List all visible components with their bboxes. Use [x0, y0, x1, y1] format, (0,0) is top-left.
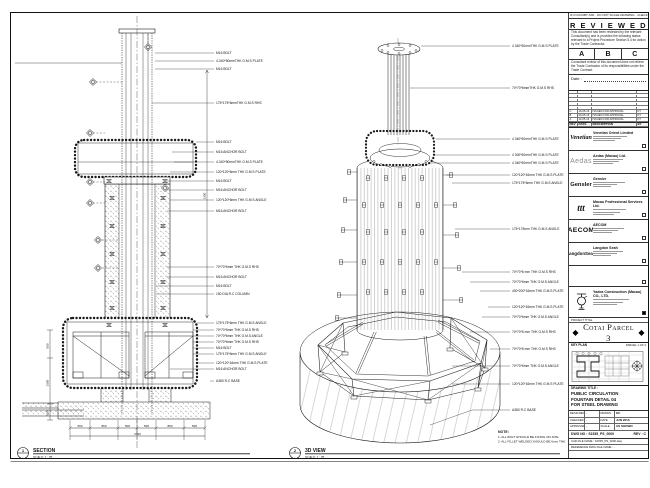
- callout-label: M16 BOLT: [216, 140, 232, 144]
- status-checkbox: [642, 144, 646, 148]
- callout-label: 120*120*16mm THK G.M.S PLATE: [512, 305, 564, 309]
- venetian-logo: Venetian: [569, 128, 593, 150]
- dim-label: 3300: [203, 192, 207, 199]
- stamp-paragraph: Consultant review of this document does …: [569, 60, 648, 74]
- gensler-logo: Gensler: [569, 174, 593, 196]
- reference-dwg-row: REFERENCE DWG FILE NAME : -: [569, 445, 648, 451]
- callout-label: 4 340*50mmTHK G.M.S PLATE: [512, 44, 559, 48]
- status-checkbox: [642, 167, 646, 171]
- title-block: IF IN DOUBT ASK · DO NOT SCALE DRAWING ·…: [569, 13, 648, 458]
- status-checkbox-filled: [642, 311, 646, 315]
- dwg-no: S1535_PS_0000: [588, 432, 614, 436]
- note-title: NOTE:: [498, 430, 509, 434]
- iso-title: 3D VIEW: [305, 448, 326, 454]
- rev-value: C: [644, 432, 646, 436]
- callout-label: M16 BOLT: [216, 284, 232, 288]
- dim-total-label: 3720: [134, 432, 141, 436]
- consultant-row-aedas: Aedas Aedas (Macau) Ltd.: [569, 151, 648, 174]
- rod-bundle: [378, 38, 420, 145]
- date-blank-line: [584, 77, 646, 82]
- ttt-logo: ttt: [569, 197, 593, 219]
- dim-label: 500: [77, 424, 82, 428]
- rev-cell: B: [569, 114, 578, 117]
- callout-label: 70*70*6 mm THK G.M.S RHS: [512, 270, 557, 274]
- callout-label: 4 300*50mmTHK G.M.S PLATE: [512, 153, 559, 157]
- section-title: SECTION: [33, 448, 56, 454]
- consultant-row-macau-professional: ttt Macau Professional Services Ltd.: [569, 197, 648, 220]
- iso-scale: SCALE 1 : 25: [305, 455, 325, 459]
- callout-label: M16 ANCHOR BOLT: [216, 367, 247, 371]
- consultant-name: Aedas (Macau) Ltd.: [593, 154, 648, 158]
- consultant-row-gensler: Gensler Gensler: [569, 174, 648, 197]
- callout-label: 4-340*50mmTHK G.M.S PLATE: [216, 160, 264, 164]
- status-option-b: B: [595, 49, 621, 59]
- rev-header: DATE: [578, 122, 592, 127]
- status-checkbox: [642, 259, 646, 263]
- consultant-row-aecom: AECOM AECOM: [569, 220, 648, 243]
- callout-label: A380 R.C BASE: [512, 408, 537, 412]
- callout-label: M16 BOLT: [216, 179, 232, 183]
- dim-bottom: 500 860 500 500 860 500 3720: [69, 420, 207, 440]
- dim-right: 3300: [203, 70, 209, 318]
- field-value: AS SHOWN: [615, 424, 648, 431]
- callout-label: 120*120*6mm THK G.M.S ANGLE: [216, 198, 267, 202]
- reviewed-stamp: IF IN DOUBT ASK · DO NOT SCALE DRAWING ·…: [569, 13, 648, 91]
- callout-label: M16 ANCHOR BOLT: [216, 188, 247, 192]
- dim-label: 500: [46, 410, 50, 415]
- callout-label: M16 BOLT: [216, 346, 232, 350]
- dim-label: 500: [144, 424, 149, 428]
- reference-dwg-label: REFERENCE DWG FILE NAME :: [571, 445, 613, 449]
- base-cylinder: [300, 312, 500, 443]
- note-line: 1. ALL BOLT SHOULD BE FIXING ON SITE.: [498, 435, 559, 439]
- drawing-title-block: DRAWING TITLE : PUBLIC CIRCULATION FOUNT…: [569, 386, 648, 458]
- contractor-row: Yadea Construction (Macau) CO., LTD.: [569, 287, 648, 318]
- callout-label: M16 ANCHOR BOLT: [216, 150, 247, 154]
- consultant-name: Gensler: [593, 177, 648, 181]
- cad-file-value: S1535_PS_0000.dwg: [595, 439, 622, 443]
- callout-label: 70*70*6mm THK G.M.S ANGLE: [512, 364, 560, 368]
- reviewed-title: R E V I E W E D: [569, 19, 648, 30]
- callout-label: M16 ANCHOR BOLT: [216, 275, 247, 279]
- rev-header: DESCRIPTION: [592, 122, 637, 127]
- consultant-row-langdon-seah: LangdonSeah Langdon Seah: [569, 243, 648, 266]
- iso-bubble-ref: -: [294, 455, 295, 459]
- consultant-name: Macau Professional Services Ltd.: [593, 200, 648, 209]
- ornament-icon: ◆: [569, 329, 582, 337]
- callout-label: 175*175*6mm THK G.M.S ANGLE: [512, 181, 563, 185]
- status-options: A B C: [569, 48, 648, 60]
- callout-label: 70*70*6mm THK G.M.S ANGLE: [216, 334, 264, 338]
- reference-dwg-value: -: [614, 445, 615, 449]
- status-checkbox: [642, 190, 646, 194]
- rev-label: REV :: [634, 432, 643, 436]
- section-bubble-ref: -: [22, 455, 23, 459]
- dim-label: 500: [46, 343, 50, 348]
- key-plan: KEY PLAN PARCEL 1 OF 3: [569, 343, 648, 386]
- callout-label: 70*70*6mmTHK G.M.S RHS: [512, 86, 555, 90]
- ornament-icon: ◆: [635, 329, 648, 337]
- contractor-logo: [569, 287, 593, 317]
- section-view: 500 1500 500 3300 500 860 500 500 860 50…: [15, 16, 268, 448]
- rev-cell: 12-05-16: [578, 118, 592, 121]
- callout-label: 175*175*6mm THK G.M.S ANGLE: [216, 321, 267, 325]
- callout-label: 150 DIA R.C COLUMN: [216, 292, 250, 296]
- key-plan-map: [569, 349, 646, 384]
- building-outline: [577, 356, 599, 377]
- title-fields: DESIGNED - DRAWN KC CHECKED - DATE JUN 2…: [569, 410, 648, 431]
- note-line: 2. ALL FILLET WELDED SHOULD BE 6mm THK.: [498, 440, 566, 444]
- callout-label: M16 BOLT: [216, 67, 232, 71]
- rev-cell: 26-05-16: [578, 114, 592, 117]
- callout-label: 4-340*50mmTHK G.M.S PLATE: [216, 59, 264, 63]
- stamp-paragraph: This document has been reviewed by the r…: [569, 30, 648, 48]
- callout-label: 120*120*6mm THK G.M.S PLATE: [216, 170, 267, 174]
- contractor-name: Yadea Construction (Macau) CO., LTD.: [593, 290, 648, 299]
- dim-label: 1500: [46, 379, 50, 386]
- dim-label: 500: [125, 424, 130, 428]
- dim-label: 500: [192, 424, 197, 428]
- consultant-row-empty: [569, 266, 648, 287]
- compass-icon: [632, 361, 643, 372]
- langdon-seah-logo: LangdonSeah: [569, 243, 593, 265]
- rev-cell: ISSUED FOR APPROVAL: [592, 114, 637, 117]
- callout-label: 4 340*50mmTHK G.M.S PLATE: [512, 137, 559, 141]
- section-callouts: M16 BOLT 4-340*50mmTHK G.M.S PLATE M16 B…: [216, 51, 268, 383]
- iso-callouts: 4 340*50mmTHK G.M.S PLATE 70*70*6mmTHK G…: [512, 44, 564, 412]
- callout-label: A380 R.C BASE: [216, 379, 241, 383]
- stamp-date-row: Date :: [569, 74, 648, 83]
- status-option-a: A: [569, 49, 595, 59]
- iso-bubble-num: 2: [294, 448, 297, 453]
- status-checkbox: [642, 213, 646, 217]
- date-label: Date :: [571, 77, 582, 83]
- aedas-logo: Aedas: [569, 151, 593, 173]
- drawing-title-line: FOR STEEL DRAWING: [569, 402, 648, 408]
- consultant-name: Langdon Seah: [593, 246, 648, 250]
- collar: [366, 131, 434, 168]
- rev-cell: ISSUED FOR APPROVAL: [592, 110, 637, 113]
- callout-label: 175*175mm THK G.M.S ANGLE: [512, 227, 560, 231]
- status-checkbox: [642, 236, 646, 240]
- rev-cell: KT: [637, 110, 648, 113]
- callout-label: 175*175*6mmTHK G.M.S RHS: [216, 101, 262, 105]
- callout-label: 70*70*6mm THK G.M.S RHS: [216, 265, 260, 269]
- rev-cell: KT: [637, 118, 648, 121]
- callout-label: M16 ANCHOR BOLT: [216, 209, 247, 213]
- iso-view: 4 340*50mmTHK G.M.S PLATE 70*70*6mmTHK G…: [300, 38, 564, 443]
- general-note: NOTE: 1. ALL BOLT SHOULD BE FIXING ON SI…: [498, 430, 566, 444]
- callout-label: M16 BOLT: [216, 51, 232, 55]
- callout-label: 400*200*16mm THK G.M.S PLATE: [512, 289, 564, 293]
- rev-cell: A: [569, 118, 578, 121]
- dwg-number-row: DWG NO : S1535_PS_0000 REV : C: [569, 431, 648, 439]
- rev-cell: KT: [637, 114, 648, 117]
- dim-label: 860: [101, 424, 106, 428]
- view-labels: 1 - SECTION SCALE 1 : 25 2 - 3D VIEW SCA…: [18, 448, 561, 460]
- rev-header: BY: [637, 122, 648, 127]
- callout-label: 70*70*6mm THK G.M.S RHS: [216, 340, 260, 344]
- aecom-logo: AECOM: [569, 220, 593, 242]
- project-title: Cotai Parcel 3: [582, 322, 635, 342]
- dwg-no-label: DWG NO :: [571, 432, 587, 436]
- callout-label: 4 340*50mmTHK G.M.S PLATE: [512, 161, 559, 165]
- trophy-icon: [574, 292, 589, 312]
- fluted-column: [357, 158, 443, 340]
- consultant-name: AECOM: [593, 223, 648, 227]
- drawing-sheet-canvas: 500 1500 500 3300 500 860 500 500 860 50…: [0, 0, 650, 488]
- dim-label: 860: [167, 424, 172, 428]
- revision-table: C 10-06-16 ISSUED FOR APPROVAL KT B 26-0…: [569, 91, 648, 128]
- rev-header: REV: [569, 122, 578, 127]
- callout-label: 120*120*16mm THK G.M.S PLATE: [512, 173, 564, 177]
- consultant-row-venetian: Venetian Venetian Orient Limited: [569, 128, 648, 151]
- callout-label: 70*70*6mm THK G.M.S ANGLE: [512, 315, 560, 319]
- status-option-c: C: [622, 49, 648, 59]
- field-label: SCALE: [600, 424, 616, 431]
- callout-label: 70*70*6 mm THK G.M.S RHS: [512, 347, 557, 351]
- section-scale: SCALE 1 : 25: [33, 455, 53, 459]
- callout-label: 120*120*16mm THK G.M.S PLATE: [216, 361, 268, 365]
- callout-label: 70*70*6mm THK G.M.S RHS: [216, 328, 260, 332]
- callout-label: 175*175*6mm THK G.M.S ANGLE: [216, 352, 267, 356]
- status-checkbox: [642, 280, 646, 284]
- rev-cell: ISSUED FOR APPROVAL: [592, 118, 637, 121]
- callout-label: 70*70*6mm THK G.M.S ANGLE: [512, 280, 560, 284]
- rev-cell: 10-06-16: [578, 110, 592, 113]
- section-bubble-num: 1: [22, 448, 25, 453]
- field-label: APPROVED: [569, 424, 585, 431]
- callout-label: 120*120*16mm THK G.M.S PLATE: [512, 382, 564, 386]
- field-value: -: [585, 424, 600, 431]
- consultant-name: Venetian Orient Limited: [593, 131, 648, 135]
- project-band: PROJECT TITLE ◆ Cotai Parcel 3 ◆: [569, 318, 648, 343]
- cad-file-label: CAD FILE NAME :: [571, 439, 594, 443]
- callout-label: 70*70*6 mm THK G.M.S RHS: [512, 330, 557, 334]
- rev-cell: C: [569, 110, 578, 113]
